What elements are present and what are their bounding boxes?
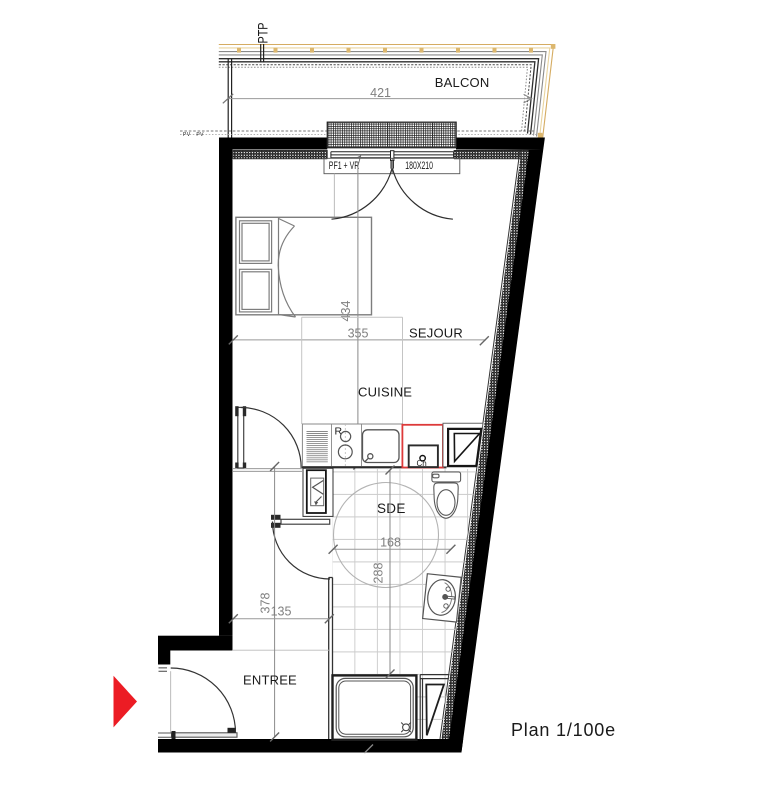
svg-text:168: 168	[380, 535, 401, 549]
svg-text:PV PV: PV PV	[183, 132, 204, 138]
svg-text:CUISINE: CUISINE	[358, 385, 412, 400]
svg-text:ENTREE: ENTREE	[243, 673, 297, 688]
svg-text:135: 135	[271, 605, 292, 619]
svg-text:Ch: Ch	[417, 459, 427, 468]
svg-text:PF1 + VR: PF1 + VR	[329, 160, 360, 172]
svg-text:SDE: SDE	[377, 501, 406, 516]
svg-text:421: 421	[370, 86, 391, 100]
svg-text:PTP: PTP	[255, 23, 271, 44]
svg-text:SEJOUR: SEJOUR	[409, 326, 463, 341]
svg-text:288: 288	[372, 563, 386, 584]
svg-text:434: 434	[339, 301, 353, 322]
svg-text:355: 355	[348, 326, 369, 340]
svg-text:Plan 1/100e: Plan 1/100e	[511, 720, 616, 740]
svg-text:180X210: 180X210	[405, 160, 433, 172]
svg-text:BALCON: BALCON	[435, 75, 490, 90]
svg-text:R: R	[335, 426, 343, 438]
